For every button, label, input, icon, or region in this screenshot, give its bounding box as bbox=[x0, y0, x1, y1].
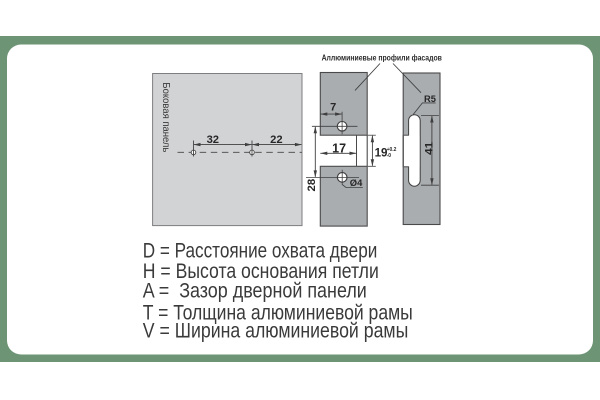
svg-text:A = Зазор дверной панели: A = Зазор дверной панели bbox=[143, 279, 367, 303]
svg-text:R5: R5 bbox=[424, 94, 436, 104]
svg-text:7: 7 bbox=[330, 102, 336, 114]
svg-text:22: 22 bbox=[270, 134, 282, 146]
svg-text:32: 32 bbox=[207, 134, 219, 146]
svg-text:28: 28 bbox=[306, 179, 318, 192]
svg-text:Ø4: Ø4 bbox=[350, 177, 363, 188]
svg-text:Боковая панель: Боковая панель bbox=[160, 82, 172, 152]
svg-text:-0: -0 bbox=[387, 153, 392, 159]
svg-text:17: 17 bbox=[332, 141, 346, 155]
svg-text:V = Ширина алюминиевой рамы: V = Ширина алюминиевой рамы bbox=[143, 319, 409, 343]
svg-text:Аллюминиевые профили фасадов: Аллюминиевые профили фасадов bbox=[322, 54, 442, 63]
svg-text:41: 41 bbox=[423, 141, 435, 155]
